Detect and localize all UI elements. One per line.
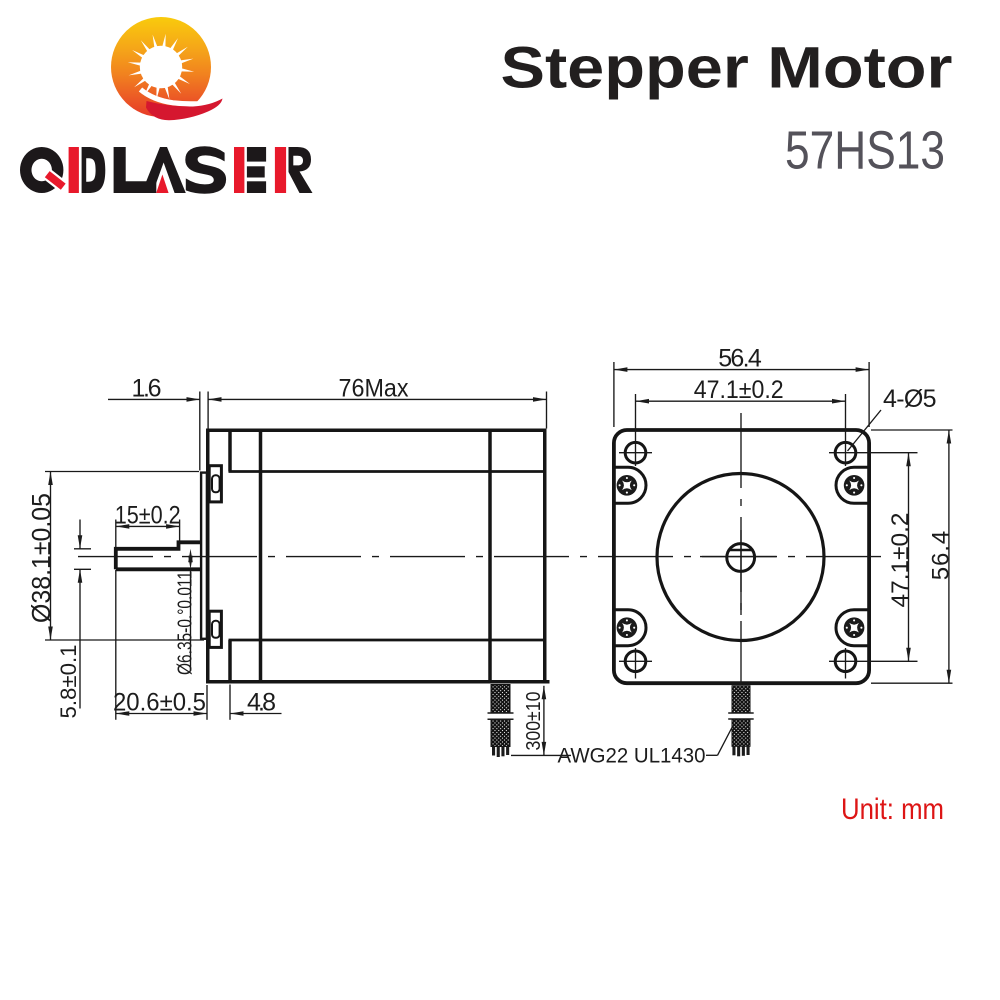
svg-text:Ø6.35-0.°0.011: Ø6.35-0.°0.011 <box>175 571 197 675</box>
svg-text:Stepper Motor: Stepper Motor <box>501 36 953 101</box>
svg-text:1.6: 1.6 <box>132 374 162 402</box>
svg-text:AWG22 UL1430: AWG22 UL1430 <box>558 744 706 768</box>
svg-text:300±10: 300±10 <box>522 692 545 751</box>
svg-text:15±0.2: 15±0.2 <box>115 501 181 529</box>
svg-text:4.8: 4.8 <box>247 689 276 717</box>
svg-text:76Max: 76Max <box>339 374 409 402</box>
svg-text:56.4: 56.4 <box>927 531 954 581</box>
svg-text:47.1±0.2: 47.1±0.2 <box>887 513 914 608</box>
svg-text:56.4: 56.4 <box>718 345 762 373</box>
svg-text:Unit: mm: Unit: mm <box>841 793 944 826</box>
svg-text:5.8±0.1: 5.8±0.1 <box>56 645 81 719</box>
svg-text:20.6±0.5: 20.6±0.5 <box>113 689 206 717</box>
svg-text:Ø38.1±0.05: Ø38.1±0.05 <box>28 493 56 623</box>
svg-text:57HS13: 57HS13 <box>785 121 945 181</box>
svg-text:4-Ø5: 4-Ø5 <box>883 385 937 413</box>
svg-text:47.1±0.2: 47.1±0.2 <box>694 376 784 404</box>
